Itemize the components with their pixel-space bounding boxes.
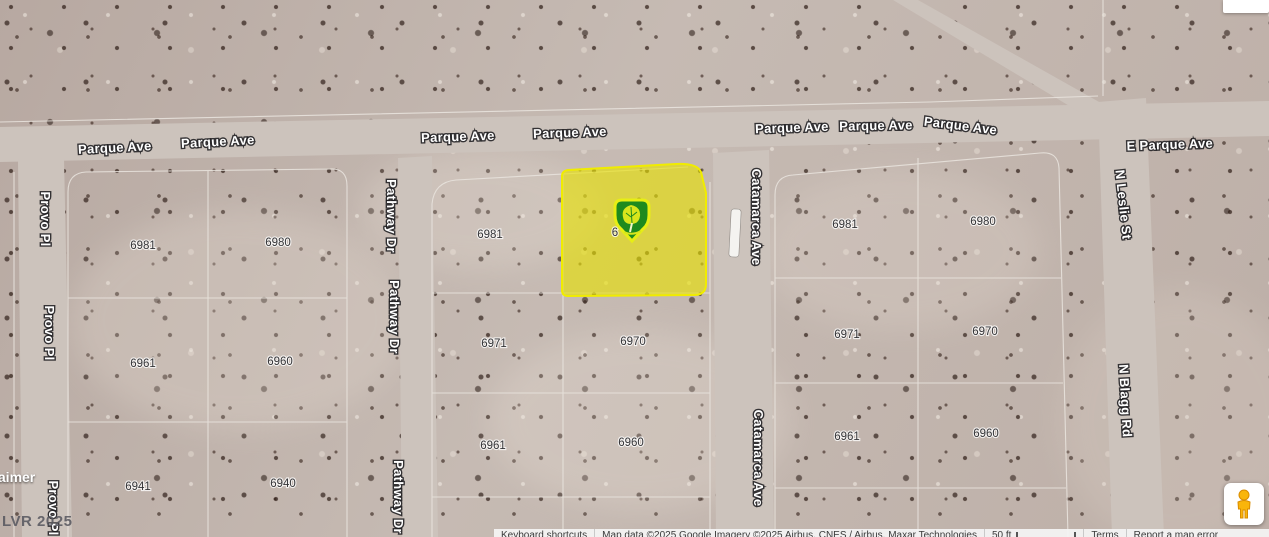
parcel-number: 6960 [973,428,999,440]
parcel-number: 6941 [125,481,151,493]
pegman-button[interactable] [1224,483,1264,525]
satellite-map-view: 6 Parque Ave Parque Ave Parque Ave Parqu… [0,0,1269,537]
street-label-catamarca-ave: Catamarca Ave [749,169,764,266]
parcel-number: 6980 [265,237,291,249]
map-overlay: 6 Parque Ave Parque Ave Parque Ave Parqu… [0,0,1269,537]
street-label-parque-ave: Parque Ave [755,119,829,137]
map-data-credit: Map data ©2025 Google Imagery ©2025 Airb… [594,529,984,537]
street-label-parque-ave: Parque Ave [421,128,495,146]
pegman-icon [1234,489,1254,519]
parcel-number: 6981 [130,240,156,252]
scale-label: 50 ft [992,529,1011,537]
parcel-number: 6971 [834,329,860,341]
parcel-number: 6981 [477,229,503,241]
lvr-watermark: LVR 2025 [2,513,72,530]
street-label-e-parque-ave: E Parque Ave [1126,135,1213,153]
parcel-number: 6980 [970,216,996,228]
street-label-provo-pl: Provo Pl [38,191,53,246]
disclaimer-watermark-fragment: laimer [0,469,35,485]
parcel-number: 6960 [267,356,293,368]
parcel-number: 6981 [832,219,858,231]
parcel-number: 6961 [130,358,156,370]
report-map-error-link[interactable]: Report a map error [1126,529,1225,537]
keyboard-shortcuts-link[interactable]: Keyboard shortcuts [494,529,594,537]
parcel-number: 6970 [972,326,998,338]
imagery-text: Imagery ©2025 Airbus, CNES / Airbus, Max… [714,530,977,537]
street-label-provo-pl: Provo Pl [42,305,57,360]
street-label-pathway-dr: Pathway Dr [384,179,399,253]
terms-link[interactable]: Terms [1083,529,1125,537]
parcel-number: 6961 [480,440,506,452]
map-scale-control[interactable]: 50 ft [984,529,1083,537]
street-label-parque-ave: Parque Ave [533,124,607,142]
parcel-number: 6940 [270,478,296,490]
street-label-catamarca-ave: Catamarca Ave [751,410,766,507]
map-control-partial[interactable] [1223,0,1269,13]
parcel-number: 6970 [620,336,646,348]
street-label-pathway-dr: Pathway Dr [391,460,406,534]
street-label-pathway-dr: Pathway Dr [387,280,402,354]
parcel-number-partial: 6 [612,227,618,239]
parcel-number: 6961 [834,431,860,443]
parcel-number: 6960 [618,437,644,449]
street-label-parque-ave: Parque Ave [839,117,913,133]
attribution-bar: Keyboard shortcuts Map data ©2025 Google… [494,529,1269,537]
map-data-text: Map data ©2025 Google [602,530,711,537]
scale-bar [1016,532,1076,537]
white-trailer [729,209,741,257]
parcel-number: 6971 [481,338,507,350]
